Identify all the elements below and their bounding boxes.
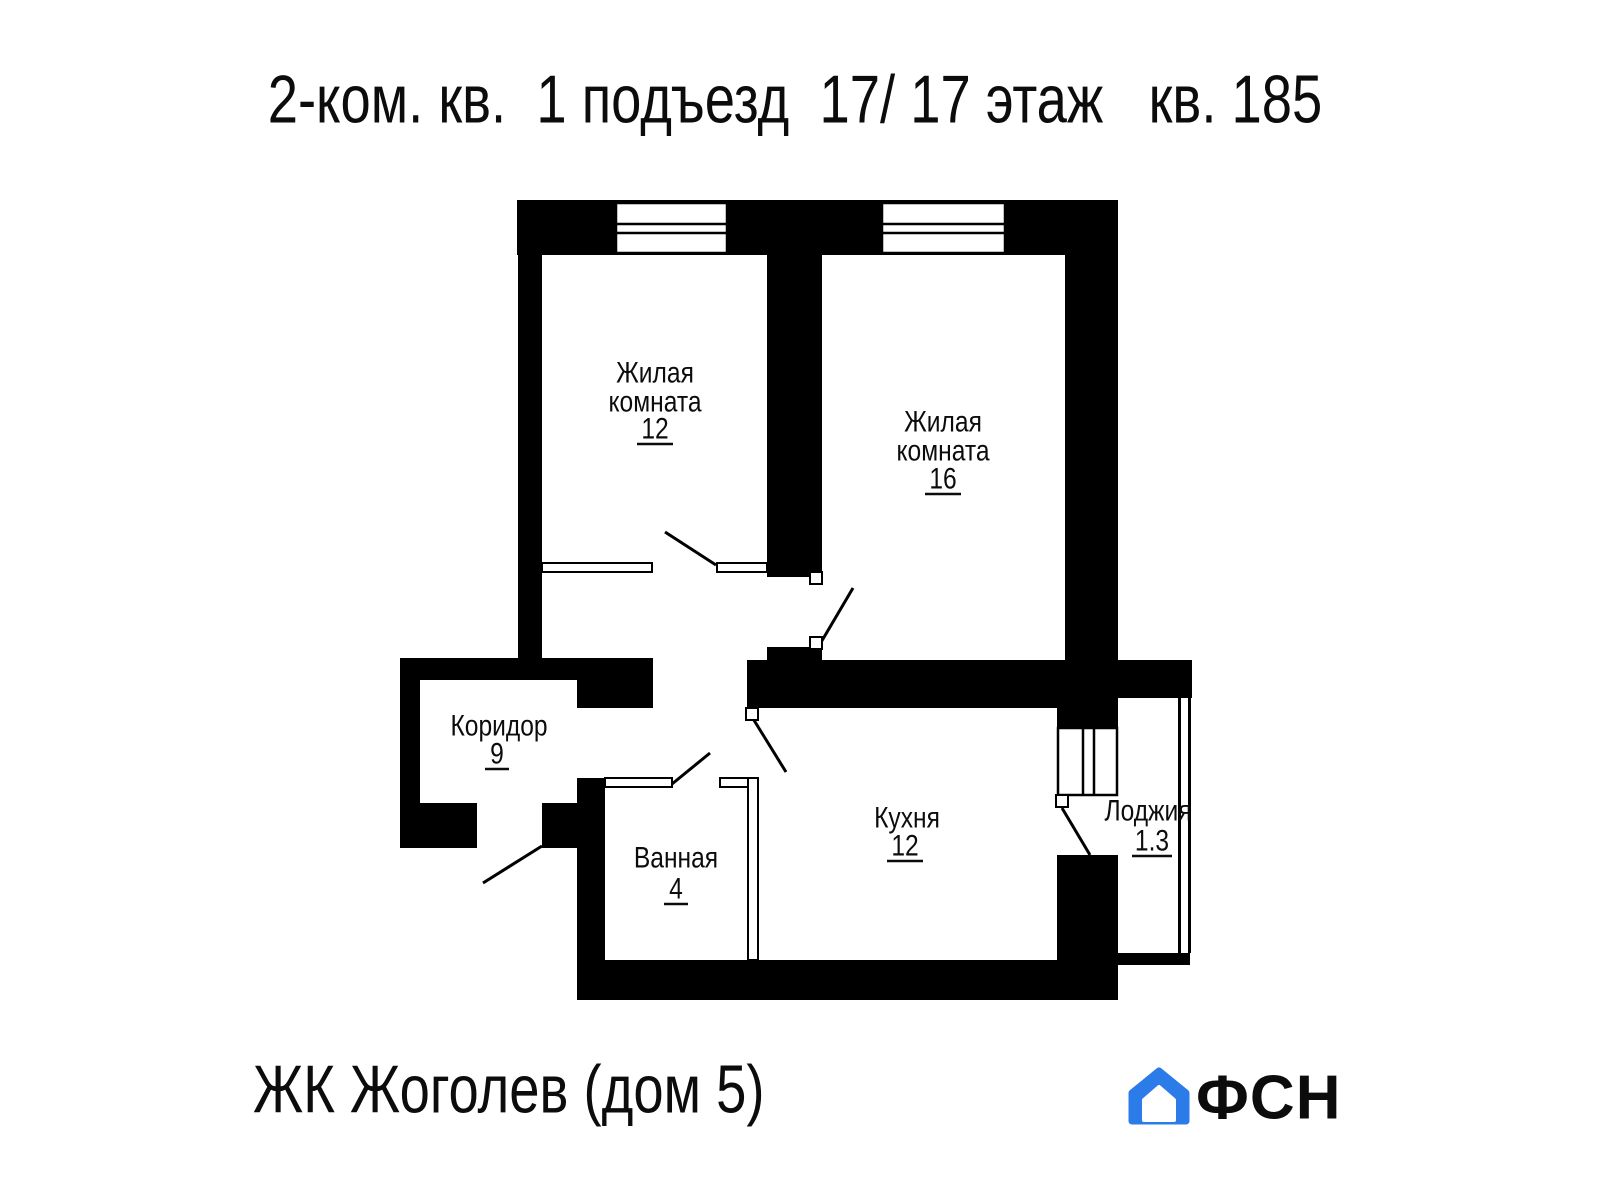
bathroom-label: Ванная	[634, 840, 718, 874]
window-kitchen-loggia	[1058, 728, 1117, 795]
wall-kitchen-right-lower	[1057, 855, 1118, 965]
window-room16	[882, 203, 1005, 253]
partition-room12-left	[542, 563, 652, 572]
wall-loggia-top	[1118, 660, 1192, 698]
window-room12	[616, 203, 727, 253]
page-background	[0, 0, 1600, 1200]
wall-corridor-top	[400, 658, 577, 680]
wall-hall-kitchen-band	[747, 660, 1118, 708]
door-kitchen-hinge	[746, 708, 758, 720]
door-room16-jamb-bottom	[810, 637, 822, 649]
page-title: 2-ком. кв. 1 подъезд 17/ 17 этаж кв. 185	[268, 62, 1323, 138]
loggia-label: Лоджия	[1104, 793, 1191, 827]
room12-area: 12	[641, 411, 668, 445]
room16-area: 16	[929, 461, 956, 495]
wall-corridor-bottom-left	[400, 803, 477, 848]
wall-bottom	[577, 960, 1118, 1000]
door-balcony-hinge	[1056, 795, 1068, 807]
partition-bathroom-top-left	[605, 778, 672, 787]
wall-right	[1065, 200, 1118, 660]
wall-left-upper	[518, 200, 542, 680]
loggia-area: 1.3	[1135, 823, 1169, 857]
wall-top	[517, 200, 1118, 255]
partition-bathroom-right	[748, 778, 758, 960]
wall-kitchen-right-upper	[1057, 708, 1118, 728]
bathroom-area: 4	[669, 871, 683, 905]
wall-band-left-chunk	[577, 658, 653, 708]
wall-between-rooms	[767, 255, 822, 577]
title-group: 2-ком. кв. 1 подъезд 17/ 17 этаж кв. 185	[268, 62, 1323, 138]
partition-room12-right	[717, 563, 767, 572]
floor-plan-page: 2-ком. кв. 1 подъезд 17/ 17 этаж кв. 185	[0, 0, 1600, 1200]
kitchen-area: 12	[891, 828, 918, 862]
wall-loggia-bottom	[1118, 953, 1190, 965]
logo-text: ФСН	[1196, 1064, 1341, 1133]
floor-plan-canvas: 2-ком. кв. 1 подъезд 17/ 17 этаж кв. 185	[0, 0, 1600, 1200]
project-name: ЖК Жоголев (дом 5)	[253, 1052, 765, 1128]
door-room16-jamb-top	[810, 572, 822, 584]
corridor-area: 9	[490, 736, 504, 770]
footer-group: ЖК Жоголев (дом 5)	[253, 1052, 765, 1128]
logo-group: ФСН	[1132, 1064, 1341, 1133]
